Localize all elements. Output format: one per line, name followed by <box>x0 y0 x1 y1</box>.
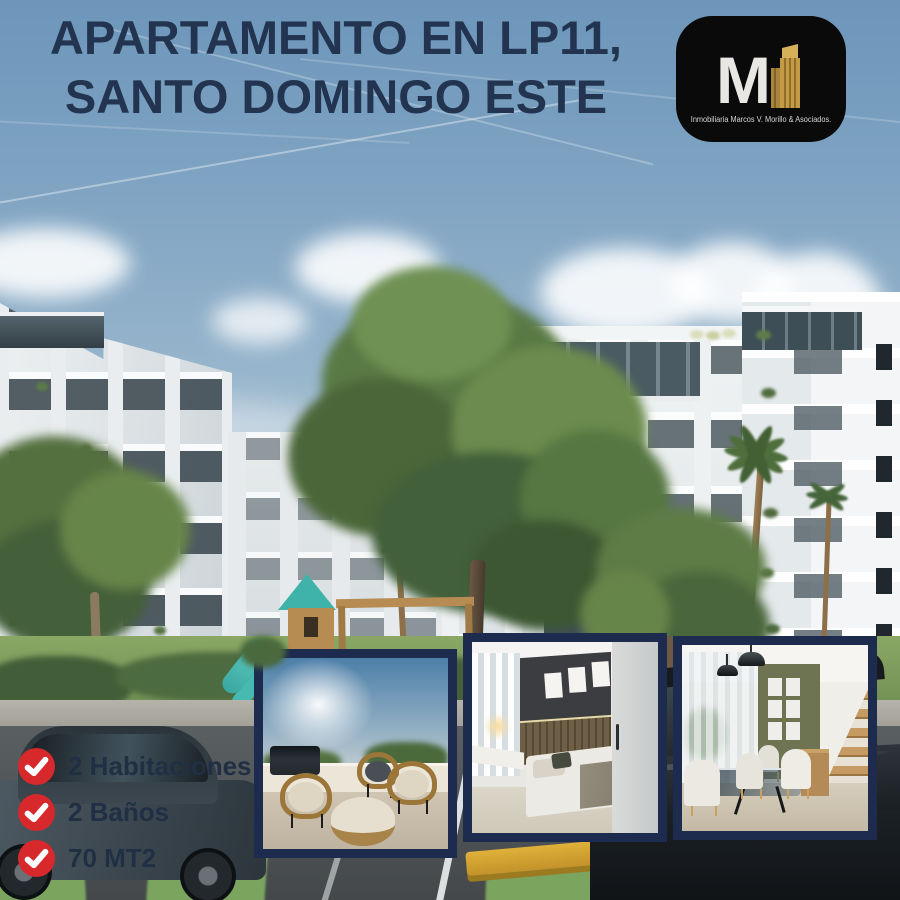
feature-label: 2 Habitaciones <box>68 751 252 782</box>
feature-bathrooms: 2 Baños <box>18 794 252 831</box>
wardrobe <box>612 642 659 833</box>
rooftop-plants <box>690 330 704 339</box>
photo-bedroom <box>463 633 667 842</box>
gold-building-icon <box>764 44 806 110</box>
agency-name: Inmobiliaria Marcos V. Morillo & Asociad… <box>687 115 834 124</box>
dining-chair <box>781 749 811 789</box>
logo-monogram: M <box>716 49 768 112</box>
dining-chair <box>736 753 763 789</box>
title-line1: APARTAMENTO EN LP11, <box>28 8 644 67</box>
desk-lamp-glow <box>489 718 506 735</box>
playground-gazebo-roof <box>278 574 336 610</box>
real-estate-flyer: APARTAMENTO EN LP11, SANTO DOMINGO ESTE … <box>0 0 900 900</box>
pendant-lamp <box>717 665 738 676</box>
wall-art-frames <box>768 678 782 696</box>
feature-bedrooms: 2 Habitaciones <box>18 748 252 785</box>
foreground-foliage <box>240 636 286 668</box>
pillow <box>551 752 572 769</box>
feature-area: 70 MT2 <box>18 840 252 877</box>
balcony-plants <box>756 330 771 340</box>
check-icon <box>18 794 55 831</box>
feature-label: 70 MT2 <box>68 843 156 874</box>
logo-mark: M <box>716 26 806 112</box>
window-column <box>876 344 892 674</box>
window-column <box>794 350 842 670</box>
check-icon <box>18 748 55 785</box>
feature-list: 2 Habitaciones 2 Baños 70 MT2 <box>18 748 252 886</box>
bbq-grill <box>270 746 320 775</box>
dining-chair <box>684 760 720 806</box>
tree-left <box>60 470 190 590</box>
rattan-chair <box>280 773 332 819</box>
check-icon <box>18 840 55 877</box>
pendant-lamp <box>738 652 765 666</box>
feature-label: 2 Baños <box>68 797 169 828</box>
rooftop-glass <box>742 306 862 350</box>
agency-logo: M Inmobiliaria Marcos V. Morillo & Asoci… <box>676 16 846 142</box>
balcony-plants <box>36 382 48 391</box>
title-line2: SANTO DOMINGO ESTE <box>28 67 644 126</box>
rattan-ottoman <box>331 797 395 846</box>
penthouse-glass <box>0 312 104 348</box>
rattan-chair <box>387 761 437 805</box>
photo-dining-room <box>673 636 877 840</box>
photo-rooftop-terrace <box>254 649 457 858</box>
poster-title: APARTAMENTO EN LP11, SANTO DOMINGO ESTE <box>28 8 644 126</box>
wall-art-frames <box>544 672 563 698</box>
tree-center <box>352 266 512 381</box>
cloud <box>212 298 307 344</box>
